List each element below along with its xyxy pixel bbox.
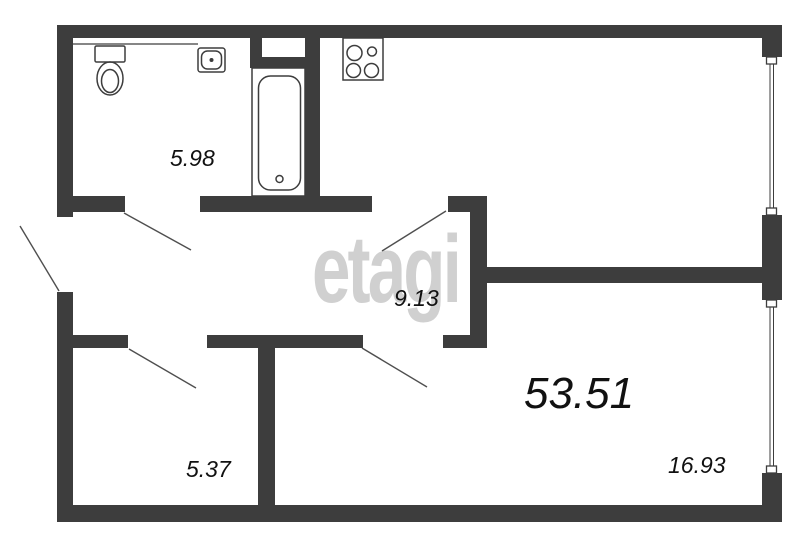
wall-kitchen-living-divider <box>487 267 762 283</box>
toilet-icon <box>95 46 125 95</box>
area-label-small-room: 5.37 <box>186 458 231 481</box>
wall-room-divider <box>258 348 275 505</box>
wall-left-upper <box>57 25 73 217</box>
wall-hall-stub-bottom <box>443 335 487 348</box>
wall-hall-bottom <box>207 335 363 348</box>
wall-right-top <box>762 25 782 57</box>
door-swing-icon-small-room <box>129 349 196 388</box>
sink-icon <box>198 48 225 72</box>
total-area-label: 53.51 <box>524 372 634 416</box>
wall-hall-right <box>470 196 487 348</box>
stove-icon <box>343 38 383 80</box>
area-label-bathroom: 5.98 <box>170 147 215 170</box>
wall-bath-bottom <box>200 196 372 212</box>
wall-left-lower <box>57 292 73 522</box>
wall-right-bottom <box>762 473 782 522</box>
window-opening <box>762 300 782 473</box>
window-frame-end <box>767 208 777 215</box>
floorplan-canvas: etagi 5.98 9.13 5.37 16.93 53.51 <box>0 0 800 553</box>
door-swing-icon-entrance <box>20 226 59 291</box>
window-icon <box>762 300 782 473</box>
wall-hall-stub-left <box>73 335 128 348</box>
door-swing-icon-living-room <box>362 348 427 387</box>
wall-right-pier <box>762 215 782 300</box>
bathtub-icon <box>252 68 305 196</box>
window-frame-end <box>767 300 777 307</box>
wall-kitchen <box>305 38 320 212</box>
door-swing-icon-bathroom <box>124 213 191 250</box>
window-icon <box>762 57 782 215</box>
area-label-living-room: 16.93 <box>668 454 726 477</box>
wall-bottom <box>57 505 782 522</box>
wall-top <box>57 25 782 38</box>
window-opening <box>762 57 782 215</box>
wall-bath-niche-horiz <box>250 57 305 68</box>
wall-bath-stub-left <box>73 196 125 212</box>
window-frame-end <box>767 466 777 473</box>
area-label-hallway: 9.13 <box>394 287 439 310</box>
window-frame-end <box>767 57 777 64</box>
